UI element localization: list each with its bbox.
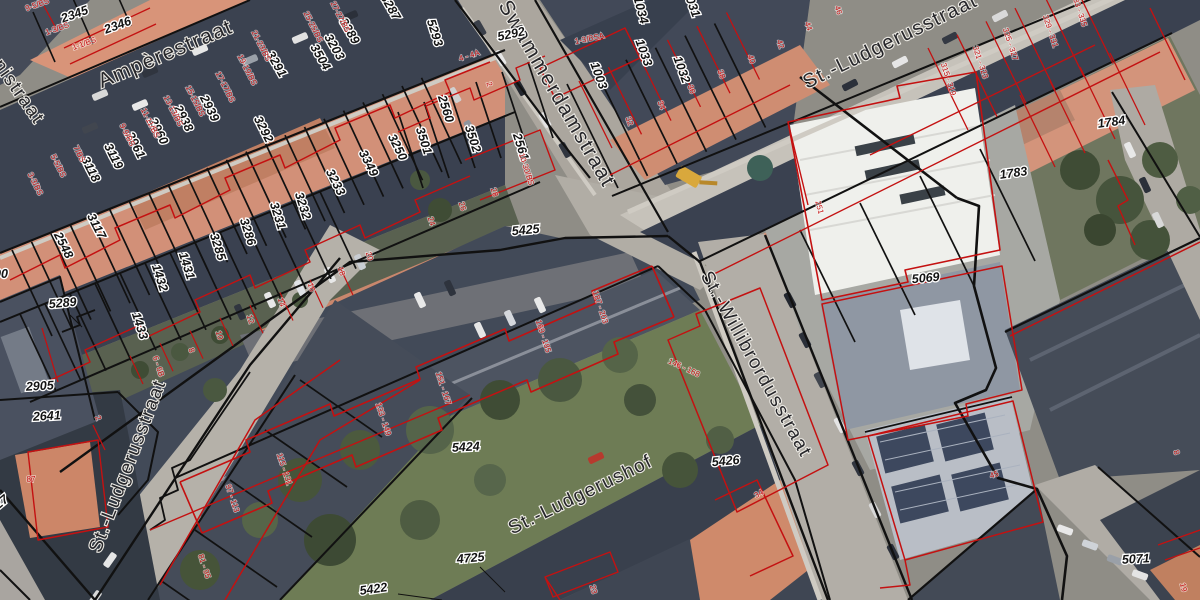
tree — [406, 406, 454, 454]
parcel-number-label: 5071 — [1122, 551, 1151, 566]
tree — [304, 514, 356, 566]
tree — [1130, 220, 1170, 260]
tree — [602, 337, 638, 373]
tree — [662, 452, 698, 488]
parcel-number-label: 5424 — [452, 439, 481, 454]
tree — [706, 426, 734, 454]
parcel-number-label: 5426 — [711, 453, 741, 469]
parcel-number-label: 2905 — [25, 378, 56, 394]
tree — [400, 500, 440, 540]
tree — [747, 155, 773, 181]
tree — [1060, 150, 1100, 190]
map-svg: AmpèrestraatSwammerdamstraatSt.-Ludgerus… — [0, 0, 1200, 600]
tree — [1084, 214, 1116, 246]
tree — [474, 464, 506, 496]
map-canvas[interactable]: AmpèrestraatSwammerdamstraatSt.-Ludgerus… — [0, 0, 1200, 600]
parcel-number-label: 5425 — [511, 222, 541, 238]
parcel-number-label: 2590 — [0, 267, 8, 281]
tree — [171, 343, 189, 361]
tree — [203, 378, 227, 402]
tree — [624, 384, 656, 416]
parcel-number-label: 5069 — [911, 270, 940, 286]
address-range-label: 87 — [27, 475, 36, 484]
parcel-number-label: 5289 — [48, 295, 77, 311]
parcel-number-label: 4725 — [455, 550, 486, 567]
parcel-number-label: 2641 — [32, 408, 62, 423]
